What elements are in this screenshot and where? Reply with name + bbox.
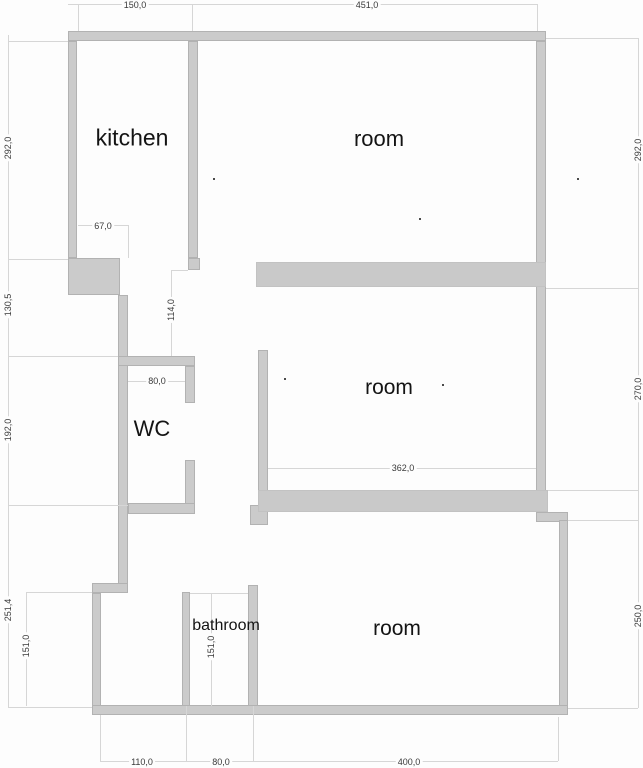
- dim-left-lower-height: 251,4: [3, 597, 13, 624]
- wall-kitchen-room-divider: [188, 41, 198, 258]
- label-kitchen: kitchen: [96, 125, 169, 152]
- wall-wc-right-upper: [185, 366, 195, 403]
- mark-dot: [577, 178, 579, 180]
- dimext-right-y288: [546, 288, 638, 289]
- dimext-kitchen-opening: [128, 225, 129, 258]
- dimext-left-y41: [8, 41, 68, 42]
- wall-bottom-exterior: [92, 705, 568, 715]
- dimext-bottom-x100: [100, 715, 101, 761]
- wall-top-exterior: [68, 31, 546, 41]
- dim-top-kitchen-width: 150,0: [122, 0, 149, 10]
- dim-bottom-room-width: 400,0: [396, 757, 423, 767]
- dimext-right-y520: [568, 520, 638, 521]
- dim-right-middle-height: 270,0: [633, 376, 643, 403]
- mark-dot: [442, 384, 444, 386]
- dim-bottom-left-width: 110,0: [129, 757, 155, 767]
- mark-dot: [213, 178, 215, 180]
- dimext-right-y490: [548, 490, 638, 491]
- wall-slab-toproom-bottom: [256, 262, 546, 287]
- dim-left-wc-height: 192,0: [3, 417, 13, 444]
- mark-dot: [419, 218, 421, 220]
- dimline-bottom: [100, 761, 558, 762]
- label-bathroom: bathroom: [192, 617, 260, 635]
- wall-right-lower-exterior: [559, 520, 568, 706]
- wall-kitchen-left: [68, 41, 77, 258]
- dim-left-kitchen-height: 292,0: [3, 135, 13, 162]
- label-room-top: room: [354, 126, 404, 152]
- dimext-left-y259: [8, 259, 68, 260]
- wall-kitchen-corner-block: [68, 258, 120, 295]
- wall-middleroom-left: [258, 350, 268, 508]
- dim-bathroom-height: 151,0: [206, 634, 216, 661]
- label-wc: WC: [134, 416, 171, 442]
- floor-plan: 150,0 451,0 292,0 130,5 192,0 251,4 151,…: [0, 0, 643, 768]
- mark-dot: [284, 378, 286, 380]
- dim-hall-opening-height: 114,0: [166, 297, 176, 323]
- label-room-middle: room: [365, 376, 413, 400]
- dimext-left-y707: [8, 707, 92, 708]
- dim-right-bottom-height: 250,0: [633, 603, 643, 630]
- dim-middleroom-width: 362,0: [390, 463, 417, 473]
- dimext-left-y505: [8, 505, 128, 506]
- wall-bathroom-left: [182, 592, 190, 706]
- dim-wc-width: 80,0: [146, 376, 168, 386]
- wall-left-lower-exterior: [92, 593, 101, 714]
- dimext-top-mid: [192, 4, 193, 31]
- dimext-right-y38: [546, 38, 638, 39]
- dim-bottom-bathroom-width: 80,0: [210, 757, 232, 767]
- label-room-bottom: room: [373, 617, 421, 641]
- dimext-top-right: [537, 4, 538, 31]
- dim-left-mid-height: 130,5: [3, 292, 13, 319]
- dimext-right-y708: [568, 708, 638, 709]
- dimext-hall-opening: [171, 270, 188, 271]
- dimext-bottom-x253: [253, 706, 254, 761]
- dim-top-room-width: 451,0: [354, 0, 381, 10]
- dimext-bathroom-height: [190, 593, 248, 594]
- dimext-top-left: [78, 4, 79, 31]
- wall-wc-left: [118, 295, 128, 593]
- wall-wc-right-lower: [185, 460, 195, 505]
- wall-left-jog: [92, 583, 128, 593]
- wall-bathroom-right: [248, 585, 258, 706]
- wall-slab-middleroom-bottom: [258, 490, 548, 512]
- wall-wc-bottom: [128, 503, 195, 514]
- dimext-bottom-x558: [558, 717, 559, 761]
- dimext-left-inner: [26, 592, 92, 593]
- dimext-bottom-x186: [186, 706, 187, 761]
- dimext-left-y356: [8, 356, 118, 357]
- dim-right-top-height: 292,0: [633, 137, 643, 164]
- wall-wc-top: [118, 356, 195, 366]
- dim-left-lowerroom-height: 151,0: [21, 633, 31, 660]
- dim-kitchen-opening-width: 67,0: [92, 221, 114, 231]
- wall-divider-foot: [188, 258, 200, 270]
